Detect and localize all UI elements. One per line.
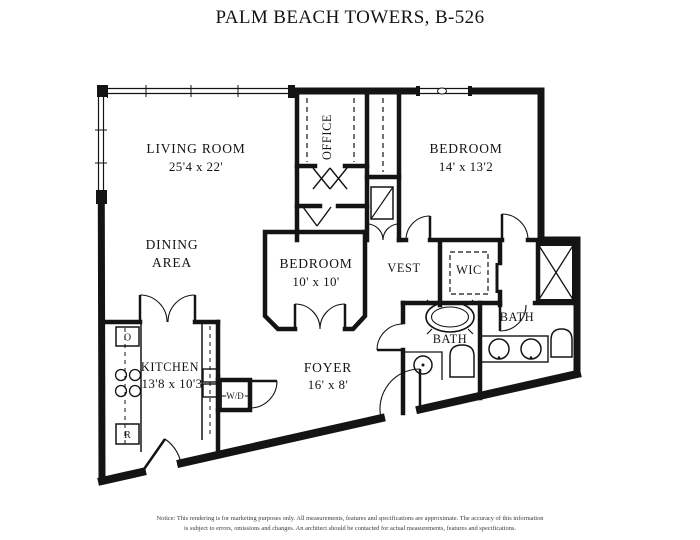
window-band-left (95, 97, 107, 197)
dining-area-label-line2: AREA (152, 255, 192, 270)
bedroom1-label: BEDROOM (429, 141, 502, 156)
foyer-dims: 16' x 8' (308, 377, 348, 392)
vest-label: VEST (387, 261, 420, 275)
washer-dryer-label: W/D (226, 391, 244, 401)
disclaimer-line2: is subject to errors, omissions and chan… (0, 524, 700, 533)
bath2-sink (403, 352, 442, 380)
foyer-label: FOYER (304, 360, 352, 375)
master-vanity (481, 336, 548, 362)
bedroom2-label: BEDROOM (279, 256, 352, 271)
bedroom2-dims: 10' x 10' (292, 274, 339, 289)
kitchen-label: KITCHEN (141, 360, 199, 374)
office-label: OFFICE (320, 114, 334, 160)
living-room-label: LIVING ROOM (146, 141, 245, 156)
room-labels: LIVING ROOM 25'4 x 22' OFFICE BEDROOM 14… (124, 114, 534, 441)
living-room-dims: 25'4 x 22' (169, 159, 223, 174)
bifold-doors (313, 168, 347, 189)
disclaimer-line1: Notice: This rendering is for marketing … (0, 514, 700, 523)
floor-plan-page: PALM BEACH TOWERS, B-526 (0, 0, 700, 540)
master-toilet (551, 329, 572, 357)
refrigerator-label: R (124, 430, 131, 441)
window-band-top (97, 85, 295, 97)
master-bath-label: BATH (500, 310, 535, 324)
bedroom1-dims: 14' x 13'2 (439, 159, 493, 174)
bath2-toilet (450, 345, 474, 377)
disclaimer-notice: Notice: This rendering is for marketing … (0, 514, 700, 533)
closet-door-v (303, 207, 331, 226)
wic-label: WIC (456, 263, 482, 277)
floor-plan-drawing: LIVING ROOM 25'4 x 22' OFFICE BEDROOM 14… (0, 0, 700, 540)
cooktop-burners (116, 370, 141, 397)
oven-label: O (124, 333, 131, 344)
dining-area-label-line1: DINING (146, 237, 199, 252)
bath2-label: BATH (433, 332, 468, 346)
utility-shaft-box (538, 244, 574, 301)
doors (140, 214, 528, 472)
bathroom-fixtures (403, 300, 572, 380)
kitchen-dims: 13'8 x 10'3 (141, 376, 202, 391)
